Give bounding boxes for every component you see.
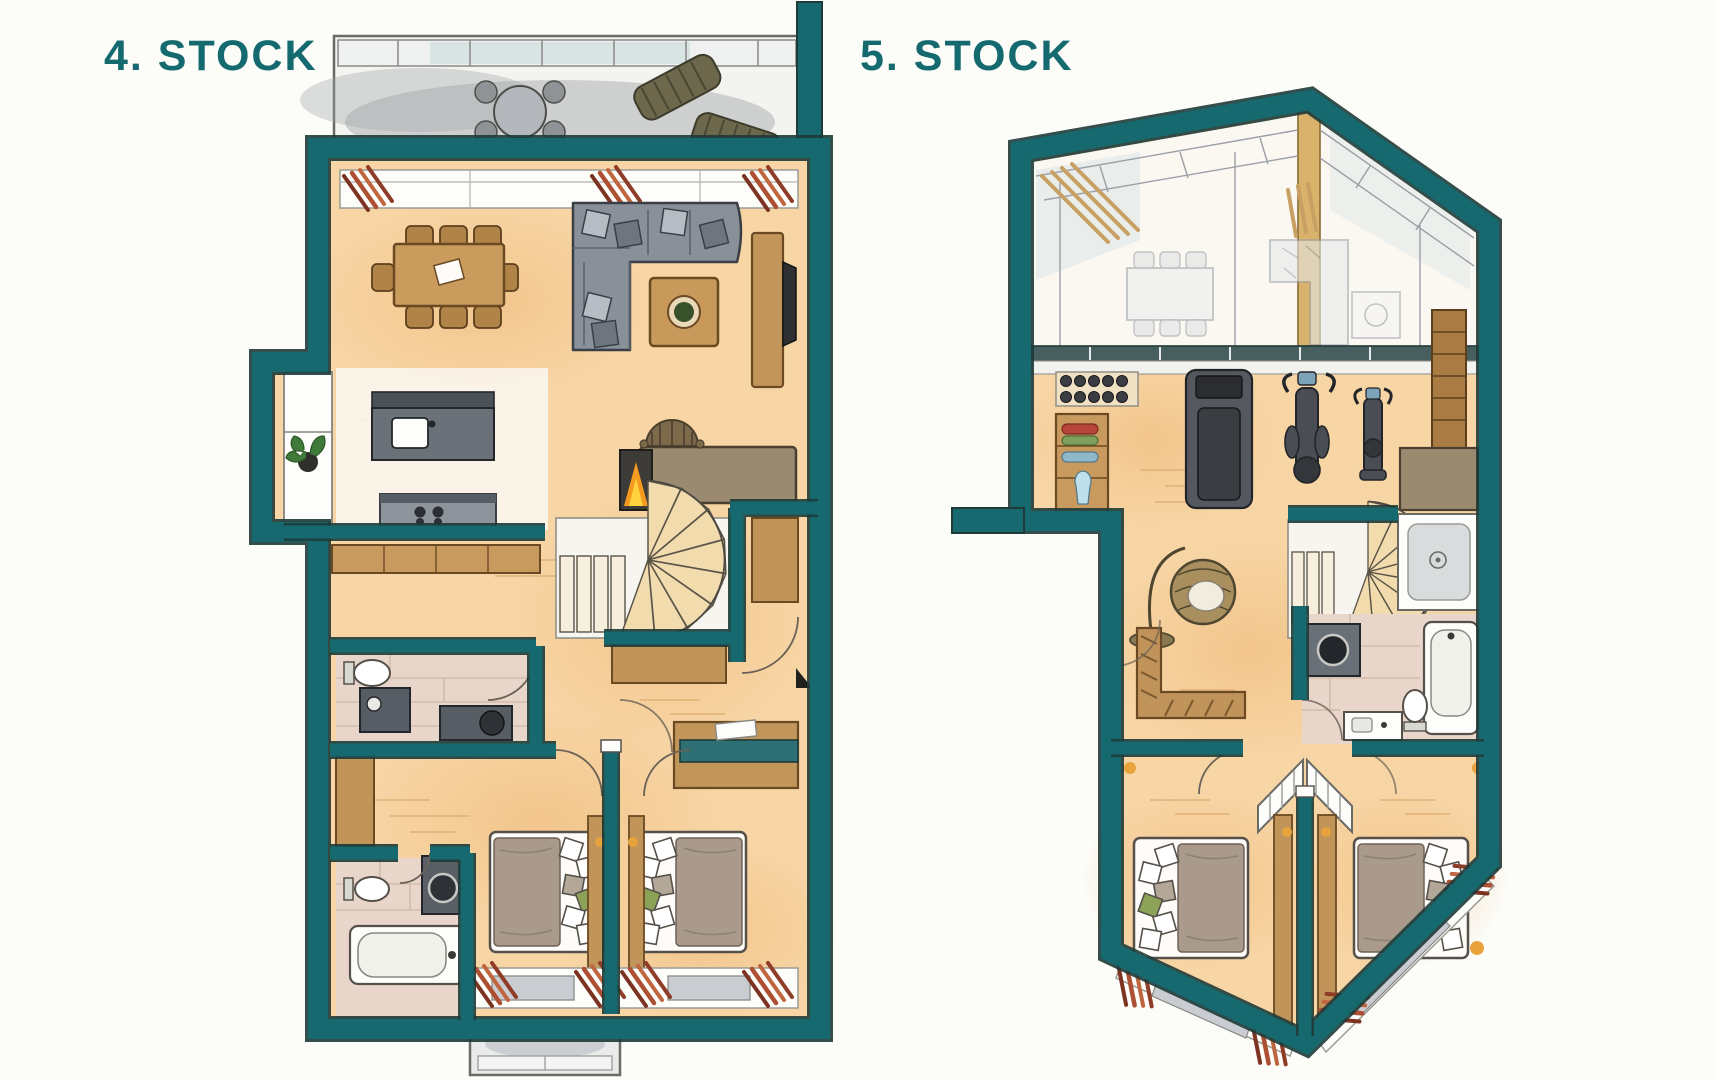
- gallery-railing: [1032, 346, 1478, 374]
- wc-vanity: [360, 688, 410, 732]
- lamp-icon: [1321, 827, 1331, 837]
- wall-nub: [952, 508, 1024, 533]
- stair-closet: [752, 518, 798, 602]
- floor5-plan: [952, 100, 1510, 1073]
- wc-toilet: [344, 660, 390, 686]
- bathroom-closet: [336, 756, 374, 846]
- washbasin-counter: [1344, 712, 1402, 740]
- floor4-plan: [262, 2, 840, 1075]
- washing-machine: [1306, 624, 1360, 676]
- wc-sink-unit: [440, 706, 512, 740]
- bedroom-windows: [468, 963, 798, 1008]
- toilet: [1403, 690, 1427, 731]
- dumbbell-rack: [1056, 372, 1138, 406]
- floor5-title: 5. STOCK: [860, 32, 1074, 80]
- water-jug-icon: [1075, 471, 1091, 504]
- treadmill: [1186, 370, 1252, 508]
- bookshelf: [1432, 310, 1466, 450]
- kitchen: [284, 368, 548, 530]
- stair-cabinet: [612, 645, 726, 683]
- lamp-icon: [628, 837, 638, 847]
- double-height-gallery: [1032, 112, 1478, 374]
- bathroom: [1302, 614, 1480, 744]
- floor4-title: 4. STOCK: [104, 32, 318, 80]
- bathroom-toilet: [344, 877, 389, 901]
- bay-window-with-plant: [284, 372, 332, 522]
- coffee-table: [650, 278, 718, 346]
- lamp-icon: [1282, 827, 1292, 837]
- corner-sideboard: [1400, 448, 1478, 510]
- lamp-icon: [1124, 762, 1136, 774]
- bedroom-desk: [674, 720, 798, 788]
- bathtub: [350, 926, 468, 984]
- bed-closet: [1274, 815, 1292, 1027]
- cooktop-counter: [380, 494, 496, 526]
- towel-shelf: [1056, 414, 1108, 512]
- floor-plan-canvas: 4. STOCK 5. STOCK: [0, 0, 1716, 1080]
- bathtub: [1424, 622, 1478, 734]
- lamp-icon: [1470, 941, 1484, 955]
- kitchen-island-with-sink: [372, 392, 494, 460]
- wc-room: [336, 654, 532, 748]
- shower: [1398, 514, 1480, 610]
